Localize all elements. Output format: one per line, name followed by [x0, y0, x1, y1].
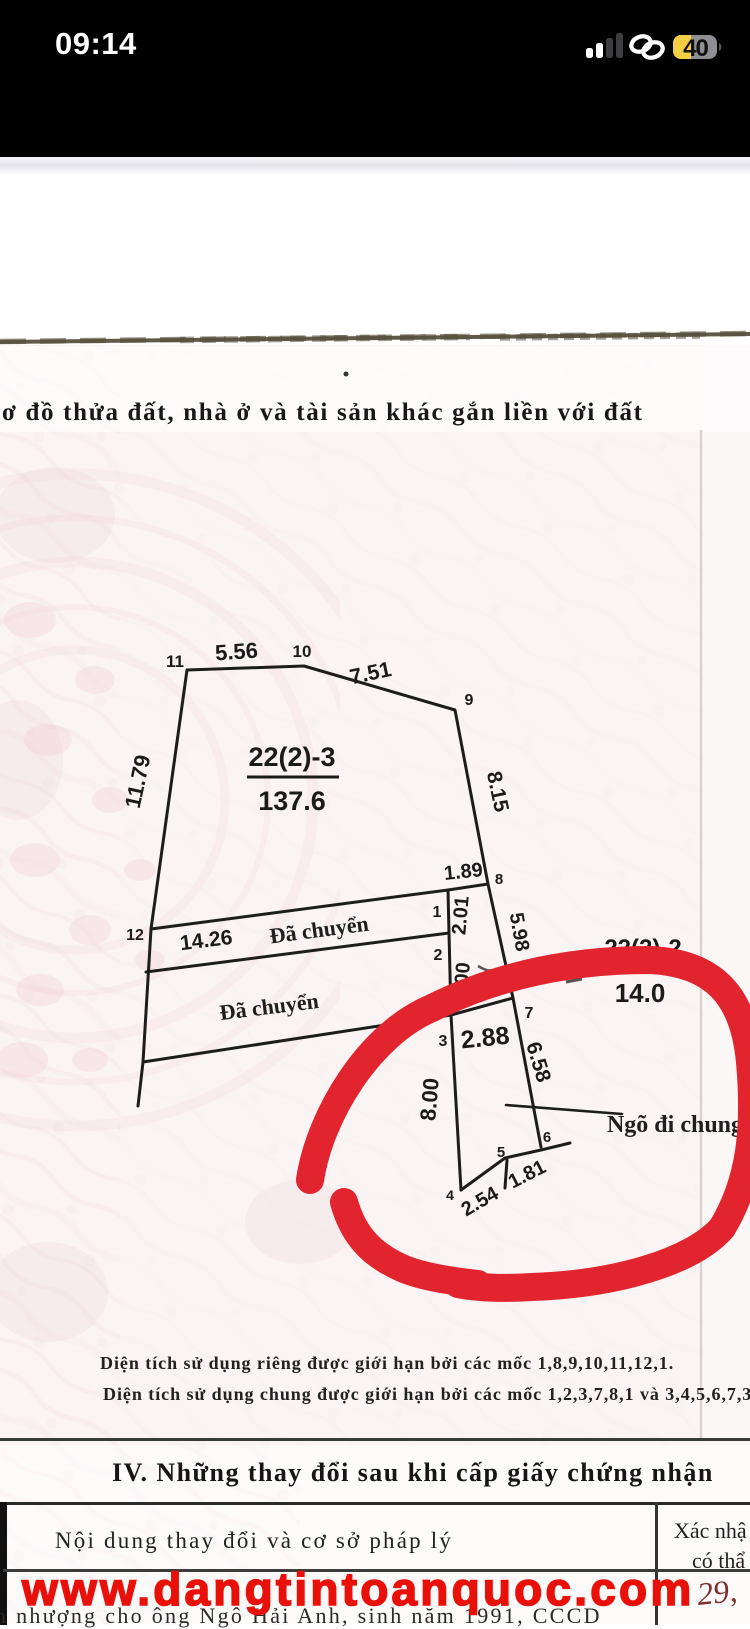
svg-text:9: 9: [465, 692, 474, 709]
svg-text:1: 1: [433, 904, 442, 921]
svg-text:ơ đồ thửa đất, nhà ở và tài sả: ơ đồ thửa đất, nhà ở và tài sản khác gắn…: [2, 399, 643, 426]
svg-text:6: 6: [543, 1129, 551, 1146]
svg-text:8: 8: [495, 871, 503, 888]
svg-text:3: 3: [439, 1033, 448, 1050]
svg-text:8.00: 8.00: [415, 1077, 444, 1122]
svg-text:12: 12: [126, 927, 144, 944]
svg-text:14.0: 14.0: [615, 978, 666, 1008]
svg-text:5: 5: [497, 1144, 505, 1161]
svg-text:2.01: 2.01: [448, 895, 473, 936]
svg-text:4: 4: [446, 1187, 454, 1203]
svg-text:7: 7: [525, 1005, 534, 1022]
svg-text:11: 11: [166, 652, 184, 671]
svg-text:Ngõ đi chung: Ngõ đi chung: [607, 1112, 743, 1138]
svg-text:2.88: 2.88: [459, 1022, 510, 1055]
svg-text:22(2)-3: 22(2)-3: [248, 742, 335, 772]
svg-text:10: 10: [293, 642, 312, 661]
svg-text:2: 2: [434, 947, 443, 964]
svg-text:137.6: 137.6: [258, 786, 326, 816]
svg-text:1.89: 1.89: [443, 859, 484, 885]
svg-text:5.56: 5.56: [214, 638, 258, 666]
